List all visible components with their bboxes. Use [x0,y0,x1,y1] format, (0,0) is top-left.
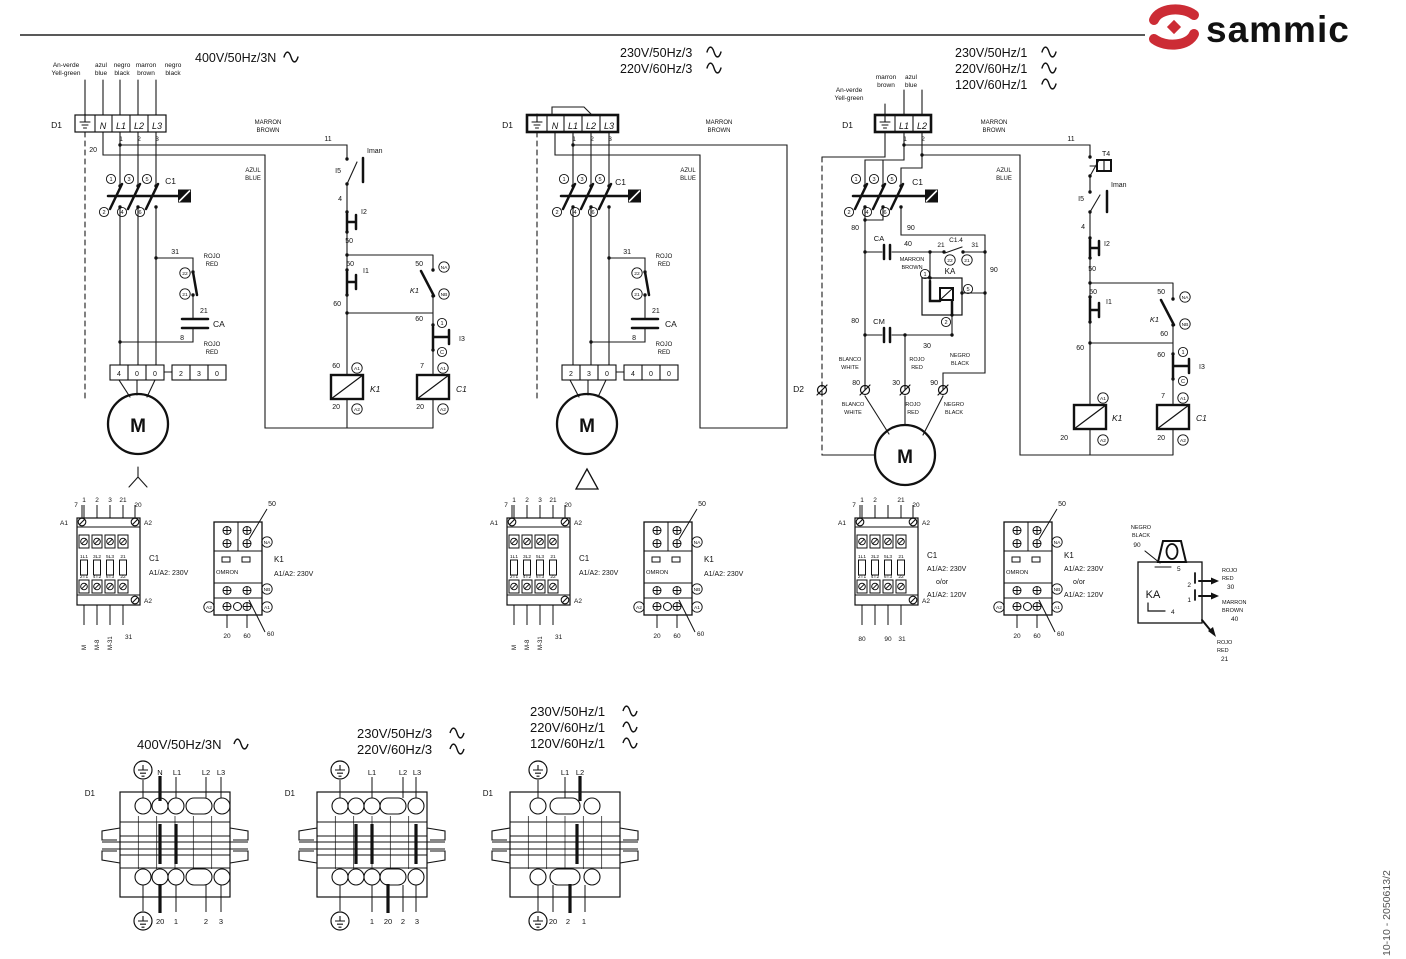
label-conn: L1 [173,768,181,777]
label-c3: I5 [1078,196,1084,203]
wiring-diagram-page: sammic 10-10 - 2050613/2 [0,0,1406,959]
label-c3: 1 [903,136,907,143]
label-c1: 4 [117,371,121,378]
label-d2: M-8 [525,639,531,650]
label-d1: 3 [108,497,112,504]
svg-text:2: 2 [847,210,850,216]
label-c3: Yell-green [834,95,863,102]
label-conn: 2 [401,917,405,926]
terminal-label-5: 5 [887,174,896,183]
svg-text:5: 5 [598,177,601,183]
label-c3: BLACK [951,361,969,367]
label-conn: 2 [566,917,570,926]
label-c1: K1 [410,286,419,295]
label-ka: 30 [1227,584,1235,591]
label-c3: T4 [1102,151,1110,158]
terminal-label-NB: NB [692,584,702,594]
label-c3: MARRON [900,257,924,263]
label-ka: 4 [1171,609,1175,616]
terminal-label-6: 6 [588,207,597,216]
label-c3: 40 [904,241,912,248]
svg-text:A2: A2 [636,605,642,611]
label-d3: 31 [898,636,906,643]
label-c1: 50 [415,261,423,268]
contact-blades [108,158,449,348]
label-c3: KA [945,267,956,276]
svg-text:A1: A1 [694,605,700,611]
label-c3: BLACK [945,410,963,416]
label-d1: 21 [119,497,127,504]
label-c1: BROWN [257,128,280,134]
junction-dots [118,143,434,351]
label-k1: 60 [243,633,251,640]
brand-text: sammic [1206,9,1350,50]
svg-text:5: 5 [145,177,148,183]
label-c1: RED [206,350,219,356]
label-c2: 3 [608,136,612,143]
terminal-label-NB: NB [1180,319,1190,329]
contactor-c1-detail-2 [507,505,570,625]
label-conn: D1 [285,789,296,798]
svg-text:NB: NB [694,587,701,593]
label-d3: 2T1 [858,574,867,580]
label-d3: 21 [897,497,905,504]
label-c3: 50 [1088,266,1096,273]
document-number: 10-10 - 2050613/2 [1381,870,1393,956]
label-c3: L2 [917,121,927,131]
label-d2: A2 [574,598,582,605]
label-c3: CA [874,234,884,243]
label-c1: L1 [116,121,126,131]
label-c1: black [114,70,130,77]
label-conn: L3 [217,768,225,777]
label-c3: K1 [1112,413,1123,423]
label-c3: L1 [899,121,909,131]
label-conn: 400V/50Hz/3N [137,737,222,752]
label-c3: 80 [852,380,860,387]
label-c3: D1 [842,120,853,130]
label-d2: 2 [525,497,529,504]
label-c2: 0 [667,371,671,378]
label-c1: 4 [338,196,342,203]
svg-text:4: 4 [865,210,868,216]
label-d3: A1 [838,520,846,527]
label-conn: D1 [85,789,96,798]
label-c1: AZUL [245,168,261,174]
label-c3: 31 [971,242,979,249]
label-c2: L2 [586,121,596,131]
label-conn: 2 [204,917,208,926]
label-c3: 230V/50Hz/1 [955,46,1027,60]
terminal-label-2: 2 [844,207,853,216]
terminal-label-1: 1 [437,318,446,327]
label-c2: L3 [604,121,614,131]
label-c3: RED [907,410,919,416]
label-c2: 1 [572,136,576,143]
label-c1: 60 [333,301,341,308]
label-d1: 7 [74,502,78,509]
terminal-label-1: 1 [920,269,929,278]
terminal-label-22: 22 [632,268,642,278]
label-d2: 31 [555,634,563,641]
svg-text:1: 1 [923,272,926,278]
label-ka: MARRON [1222,600,1246,606]
label-k1: 20 [223,633,231,640]
label-d2: 4T2 [523,574,532,580]
label-d2: M [512,645,518,650]
label-c1: 1 [119,136,123,143]
label-conn: L1 [368,768,376,777]
terminal-label-NB: NB [262,584,272,594]
label-d3: A1/A2: 230V [927,566,967,573]
label-c3: Iman [1111,182,1127,189]
label-d3: 3L2 [871,554,879,560]
svg-text:1: 1 [854,177,857,183]
label-c2: RED [658,262,671,268]
ac-sine-icon [623,706,637,716]
terminal-label-NB: NB [1052,584,1062,594]
label-d1: 21 [120,554,126,560]
label-c1: C1 [165,176,176,186]
label-c2: 2 [569,371,573,378]
label-c3: ROJO [909,357,925,363]
label-d1: A1 [60,520,68,527]
label-k3: A1/A2: 120V [1064,592,1104,599]
arrow-icon [1211,578,1219,585]
label-c3: BLANCO [839,357,862,363]
label-c1: 0 [215,371,219,378]
svg-text:1: 1 [109,177,112,183]
label-conn: 220V/60Hz/1 [530,720,605,735]
label-c2: 230V/50Hz/3 [620,46,692,60]
terminal-label-A1: A1 [1098,393,1108,403]
label-c1: C1 [456,384,467,394]
ka-relay-box [922,278,962,315]
svg-text:2: 2 [102,210,105,216]
contactor-c1-detail-1 [77,505,140,625]
label-d3: C1 [927,551,938,560]
earth-circle-icon [331,761,349,779]
ac-sine-icon [707,47,721,57]
svg-text:NB: NB [264,587,271,593]
label-d1: A2 [144,598,152,605]
label-c1: MARRON [255,120,282,126]
label-d1: 2 [95,497,99,504]
label-c3: An-verde [836,87,863,94]
terminal-label-1: 1 [851,174,860,183]
terminal-label-22: 22 [180,268,190,278]
terminal-label-3: 3 [869,174,878,183]
label-c1: negro [114,62,131,69]
label-c1: 20 [416,404,424,411]
svg-text:A2: A2 [206,605,212,611]
label-d2: C1 [579,554,590,563]
label-conn: L2 [576,768,584,777]
label-c3: RED [911,365,923,371]
terminal-label-A1: A1 [438,363,448,373]
label-d3: 4T2 [871,574,880,580]
svg-text:NB: NB [441,292,448,298]
label-c1: black [165,70,181,77]
label-ka: 40 [1231,616,1239,623]
label-c3: 20 [1157,435,1165,442]
terminal-label-1: 1 [1178,347,1187,356]
label-ka: NEGRO [1131,525,1152,531]
label-c3: 30 [923,343,931,350]
terminal-label-2: 2 [552,207,561,216]
label-c2: M [579,416,595,437]
label-c1: 2 [137,136,141,143]
label-d3: 5L3 [884,554,892,560]
terminal-label-3: 3 [577,174,586,183]
label-conn: 1 [174,917,178,926]
label-k2: A1/A2: 230V [704,571,744,578]
mounting-hole-icon [1167,544,1178,559]
label-conn: L2 [399,768,407,777]
svg-text:22: 22 [947,258,953,264]
label-d1: M-31 [108,636,114,650]
label-k3: 60 [1057,631,1065,638]
label-d2: 3L2 [523,554,531,560]
label-c3: brown [877,82,895,89]
svg-text:A1: A1 [354,366,360,372]
label-d2: 21 [549,497,557,504]
terminal-label-A1: A1 [1052,602,1062,612]
label-k2: 20 [653,633,661,640]
label-ka: KA [1146,589,1161,601]
ac-sine-icon [234,739,248,749]
schematic-canvas: 400V/50Hz/3NAn-verdeYell-greenazulbluene… [0,0,1406,959]
label-ka: ROJO [1217,640,1233,646]
label-c1: blue [95,70,108,77]
ac-sine-icon [707,63,721,73]
terminal-label-3: 3 [124,174,133,183]
label-d2: A2 [574,520,582,527]
terminal-label-NB: NB [439,289,449,299]
label-c1: 60 [332,363,340,370]
label-d2: 6T3 [536,574,545,580]
svg-text:A2: A2 [1100,438,1106,444]
label-c2: RED [658,350,671,356]
label-d1: A2 [144,520,152,527]
label-c3: WHITE [844,410,862,416]
label-d2: 7 [504,502,508,509]
svg-text:3: 3 [127,177,130,183]
label-c1: ROJO [204,254,221,260]
arrow-icon [1211,593,1219,600]
svg-text:NA: NA [1054,540,1062,546]
label-conn: 1 [370,917,374,926]
label-c3: BLUE [996,176,1012,182]
label-k3: 20 [1013,633,1021,640]
svg-text:NB: NB [1182,322,1189,328]
label-conn: 120V/60Hz/1 [530,736,605,751]
label-d1: 6T3 [106,574,115,580]
label-k3: 50 [1058,501,1066,508]
label-d2: 22 [550,574,556,580]
bold-wires [160,776,176,913]
label-c2: C1 [615,177,626,187]
terminal-label-A1: A1 [1178,393,1188,403]
label-c3: BLANCO [842,402,865,408]
label-ka: ROJO [1222,568,1238,574]
label-k1: 50 [268,501,276,508]
label-c1: 2 [179,371,183,378]
terminal-label-6: 6 [135,207,144,216]
svg-text:6: 6 [138,210,141,216]
label-d1: 2T1 [80,574,89,580]
label-c3: 120V/60Hz/1 [955,78,1027,92]
label-c3: 60 [1160,331,1168,338]
terminal-label-4: 4 [570,207,579,216]
label-d2: 1 [512,497,516,504]
ac-sine-icon [1042,47,1056,57]
ac-sine-icon [450,744,464,754]
label-c2: 0 [649,371,653,378]
label-c3: I3 [1199,364,1205,371]
svg-text:3: 3 [580,177,583,183]
svg-text:NA: NA [264,540,272,546]
label-c1: Iman [367,148,383,155]
label-d1: 22 [120,574,126,580]
sammic-logo: sammic [1142,2,1382,56]
label-c3: marron [876,74,897,81]
terminal-label-A2: A2 [352,404,362,414]
label-c3: C1.4 [949,237,963,244]
svg-text:C: C [1181,379,1185,385]
label-d3: 1 [860,497,864,504]
label-c3: 90 [907,225,915,232]
label-d2: 2T1 [510,574,519,580]
label-c1: 7 [420,363,424,370]
label-c3: AZUL [996,168,1012,174]
ac-sine-icon [623,722,637,732]
terminal-label-A2: A2 [438,404,448,414]
label-c1: 20 [332,404,340,411]
terminal-label-5: 5 [595,174,604,183]
label-c2: 2 [590,136,594,143]
label-c3: I2 [1104,241,1110,248]
bold-wires [356,824,416,913]
label-d3: A2 [922,520,930,527]
terminal-label-6: 6 [880,207,889,216]
label-d3: o/or [936,579,949,586]
terminal-label-22: 22 [945,255,955,265]
label-c1: 20 [89,147,97,154]
label-k2: 60 [673,633,681,640]
label-c1: 8 [180,335,184,342]
delta-icon [576,469,598,489]
svg-text:22: 22 [634,271,640,277]
label-c1: I3 [459,336,465,343]
terminal-label-4: 4 [117,207,126,216]
label-conn: 220V/60Hz/3 [357,742,432,757]
svg-text:NB: NB [1054,587,1061,593]
label-d1: M [82,645,88,650]
svg-text:A2: A2 [440,407,446,413]
label-c3: 50 [1157,289,1165,296]
svg-text:1: 1 [1181,350,1184,356]
label-c1: An-verde [53,62,80,69]
svg-text:22: 22 [182,271,188,277]
label-c3: 2 [921,136,925,143]
label-c3: 50 [1089,289,1097,296]
label-c1: 31 [171,249,179,256]
terminal-label-NA: NA [692,537,702,547]
label-d1: M-8 [95,639,101,650]
svg-text:1: 1 [562,177,565,183]
label-c1: K1 [370,384,381,394]
terminal-label-NA: NA [262,537,272,547]
svg-text:A1: A1 [1054,605,1060,611]
label-c2: MARRON [706,120,733,126]
label-c3: NEGRO [950,353,971,359]
label-conn: 20 [156,917,164,926]
label-c3: M [897,447,913,468]
label-c3: 220V/60Hz/1 [955,62,1027,76]
label-conn: 230V/50Hz/1 [530,704,605,719]
circuit-230v-1-schematic [817,47,1189,485]
label-c2: N [552,121,559,131]
label-conn: 3 [415,917,419,926]
label-c1: L3 [152,121,162,131]
label-k1: OMRON [216,570,238,576]
label-d1: 5L3 [106,554,114,560]
terminal-label-NA: NA [1052,537,1062,547]
label-conn: L3 [413,768,421,777]
label-d2: 20 [564,502,572,509]
label-ka: BLACK [1132,533,1150,539]
label-conn: 230V/50Hz/3 [357,726,432,741]
label-d1: 31 [125,634,133,641]
svg-text:A1: A1 [1180,396,1186,402]
label-c3: blue [905,82,918,89]
label-c2: D1 [502,120,513,130]
label-c1: RED [206,262,219,268]
label-c3: 60 [1076,345,1084,352]
ac-sine-icon [450,728,464,738]
ac-sine-icon [284,52,298,62]
ac-sine-icon [623,738,637,748]
label-c3: CM [873,317,885,326]
svg-text:5: 5 [890,177,893,183]
ac-sine-icon [1042,63,1056,73]
svg-text:A2: A2 [354,407,360,413]
terminal-label-21: 21 [632,289,642,299]
label-c1: marron [136,62,157,69]
label-c1: 21 [200,308,208,315]
terminal-label-A1: A1 [692,602,702,612]
label-c3: 7 [1161,393,1165,400]
terminal-label-NA: NA [1180,292,1190,302]
svg-text:NA: NA [694,540,702,546]
label-c1: I1 [363,268,369,275]
label-d1: C1 [149,554,160,563]
label-c2: 4 [631,371,635,378]
terminal-label-2: 2 [941,317,950,326]
terminal-label-A1: A1 [352,363,362,373]
sammic-logo-mark [1154,9,1194,44]
label-conn: 3 [219,917,223,926]
svg-text:5: 5 [966,287,969,293]
label-c3: azul [905,74,917,81]
label-ka: 21 [1221,656,1229,663]
terminal-label-A2: A2 [204,602,214,612]
label-c1: 0 [135,371,139,378]
label-c2: 8 [632,335,636,342]
label-c3: 80 [851,318,859,325]
svg-text:C: C [440,350,444,356]
